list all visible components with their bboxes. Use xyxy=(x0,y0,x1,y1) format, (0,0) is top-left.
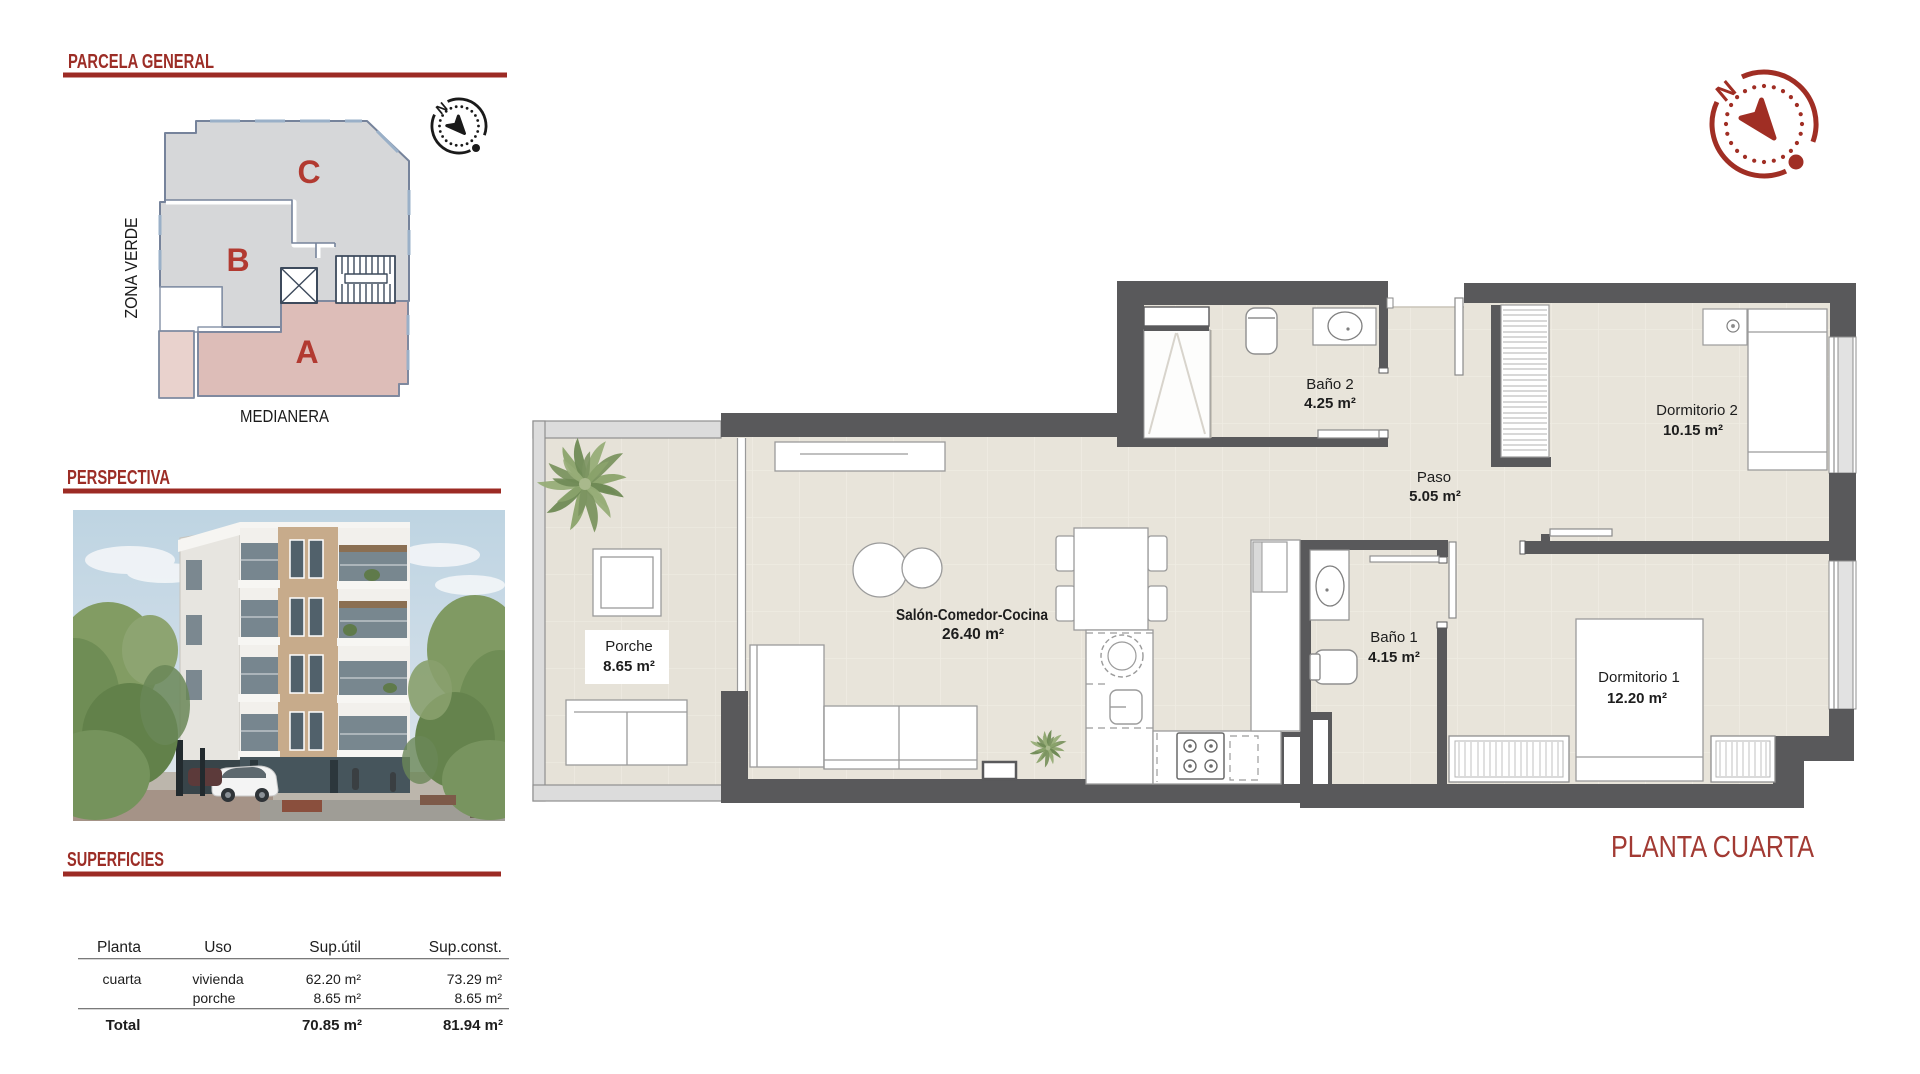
svg-text:Uso: Uso xyxy=(204,939,232,956)
svg-text:62.20 m²: 62.20 m² xyxy=(306,971,362,987)
svg-text:Paso: Paso xyxy=(1417,469,1451,486)
svg-text:A: A xyxy=(295,334,318,370)
svg-text:vivienda: vivienda xyxy=(192,971,244,987)
svg-text:C: C xyxy=(297,154,320,190)
svg-text:12.20 m²: 12.20 m² xyxy=(1607,690,1667,707)
svg-text:8.65 m²: 8.65 m² xyxy=(455,990,503,1006)
svg-text:5.05 m²: 5.05 m² xyxy=(1409,488,1461,505)
svg-text:Dormitorio 1: Dormitorio 1 xyxy=(1598,669,1680,686)
svg-text:8.65 m²: 8.65 m² xyxy=(603,658,655,675)
svg-text:Total: Total xyxy=(106,1017,141,1034)
svg-text:81.94 m²: 81.94 m² xyxy=(443,1017,503,1034)
svg-text:8.65 m²: 8.65 m² xyxy=(314,990,362,1006)
svg-text:Baño 1: Baño 1 xyxy=(1370,629,1418,646)
svg-text:4.25 m²: 4.25 m² xyxy=(1304,395,1356,412)
svg-text:Porche: Porche xyxy=(605,638,653,655)
svg-text:Baño 2: Baño 2 xyxy=(1306,376,1354,393)
svg-text:70.85 m²: 70.85 m² xyxy=(302,1017,362,1034)
svg-text:porche: porche xyxy=(193,990,236,1006)
svg-text:Sup.const.: Sup.const. xyxy=(429,939,502,956)
svg-text:cuarta: cuarta xyxy=(103,971,142,987)
svg-text:Sup.útil: Sup.útil xyxy=(309,939,361,956)
svg-text:ZONA VERDE: ZONA VERDE xyxy=(121,218,141,319)
svg-text:SUPERFICIES: SUPERFICIES xyxy=(67,848,164,871)
svg-text:Dormitorio 2: Dormitorio 2 xyxy=(1656,402,1738,419)
svg-text:PERSPECTIVA: PERSPECTIVA xyxy=(67,466,170,489)
svg-text:Planta: Planta xyxy=(97,939,141,956)
svg-text:26.40 m²: 26.40 m² xyxy=(942,626,1004,643)
svg-text:MEDIANERA: MEDIANERA xyxy=(240,406,329,426)
svg-text:4.15 m²: 4.15 m² xyxy=(1368,649,1420,666)
svg-text:PARCELA GENERAL: PARCELA GENERAL xyxy=(68,50,214,73)
svg-text:Salón-Comedor-Cocina: Salón-Comedor-Cocina xyxy=(896,607,1048,624)
svg-text:B: B xyxy=(226,242,249,278)
svg-text:73.29 m²: 73.29 m² xyxy=(447,971,503,987)
svg-text:PLANTA CUARTA: PLANTA CUARTA xyxy=(1611,829,1814,864)
svg-text:10.15 m²: 10.15 m² xyxy=(1663,422,1723,439)
